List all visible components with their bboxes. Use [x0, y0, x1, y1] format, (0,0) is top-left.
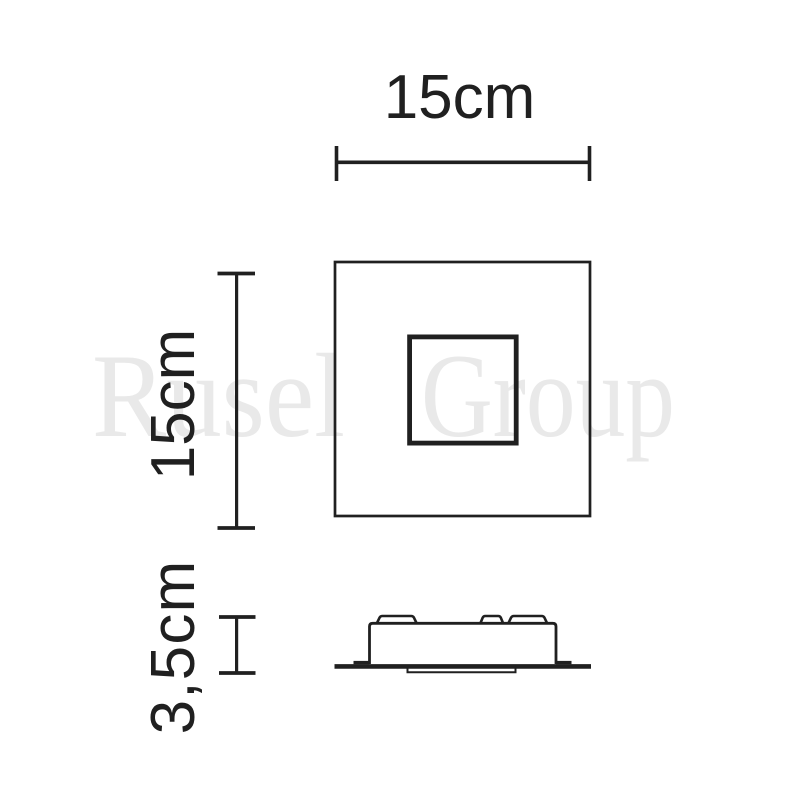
- svg-text:15cm: 15cm: [139, 329, 208, 481]
- svg-text:15cm: 15cm: [384, 63, 536, 132]
- svg-text:3,5cm: 3,5cm: [139, 560, 208, 735]
- svg-text:Rusel: Rusel: [92, 329, 345, 462]
